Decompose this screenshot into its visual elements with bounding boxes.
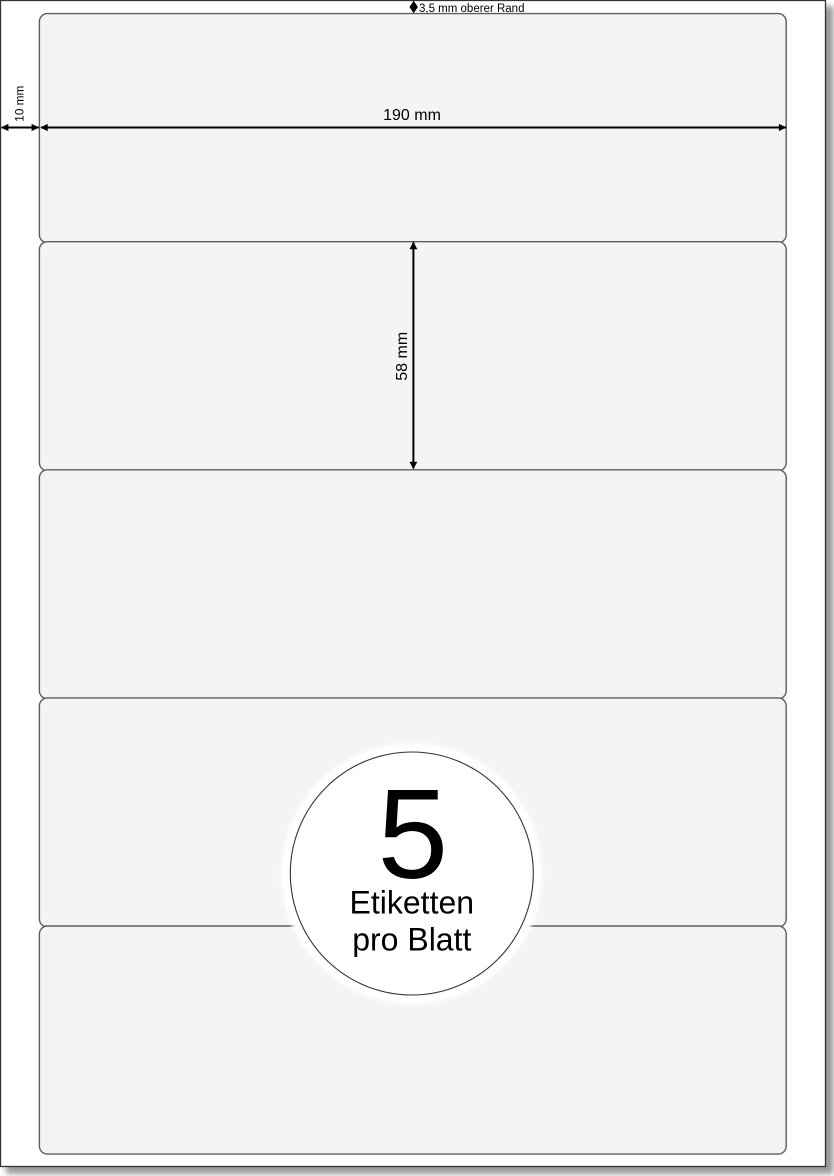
svg-text:10 mm: 10 mm — [13, 86, 27, 122]
svg-text:190 mm: 190 mm — [383, 107, 441, 124]
svg-text:3,5 mm oberer Rand: 3,5 mm oberer Rand — [419, 3, 524, 15]
svg-text:Etiketten: Etiketten — [350, 884, 475, 920]
svg-text:58 mm: 58 mm — [394, 332, 411, 381]
svg-text:pro Blatt: pro Blatt — [352, 922, 471, 958]
